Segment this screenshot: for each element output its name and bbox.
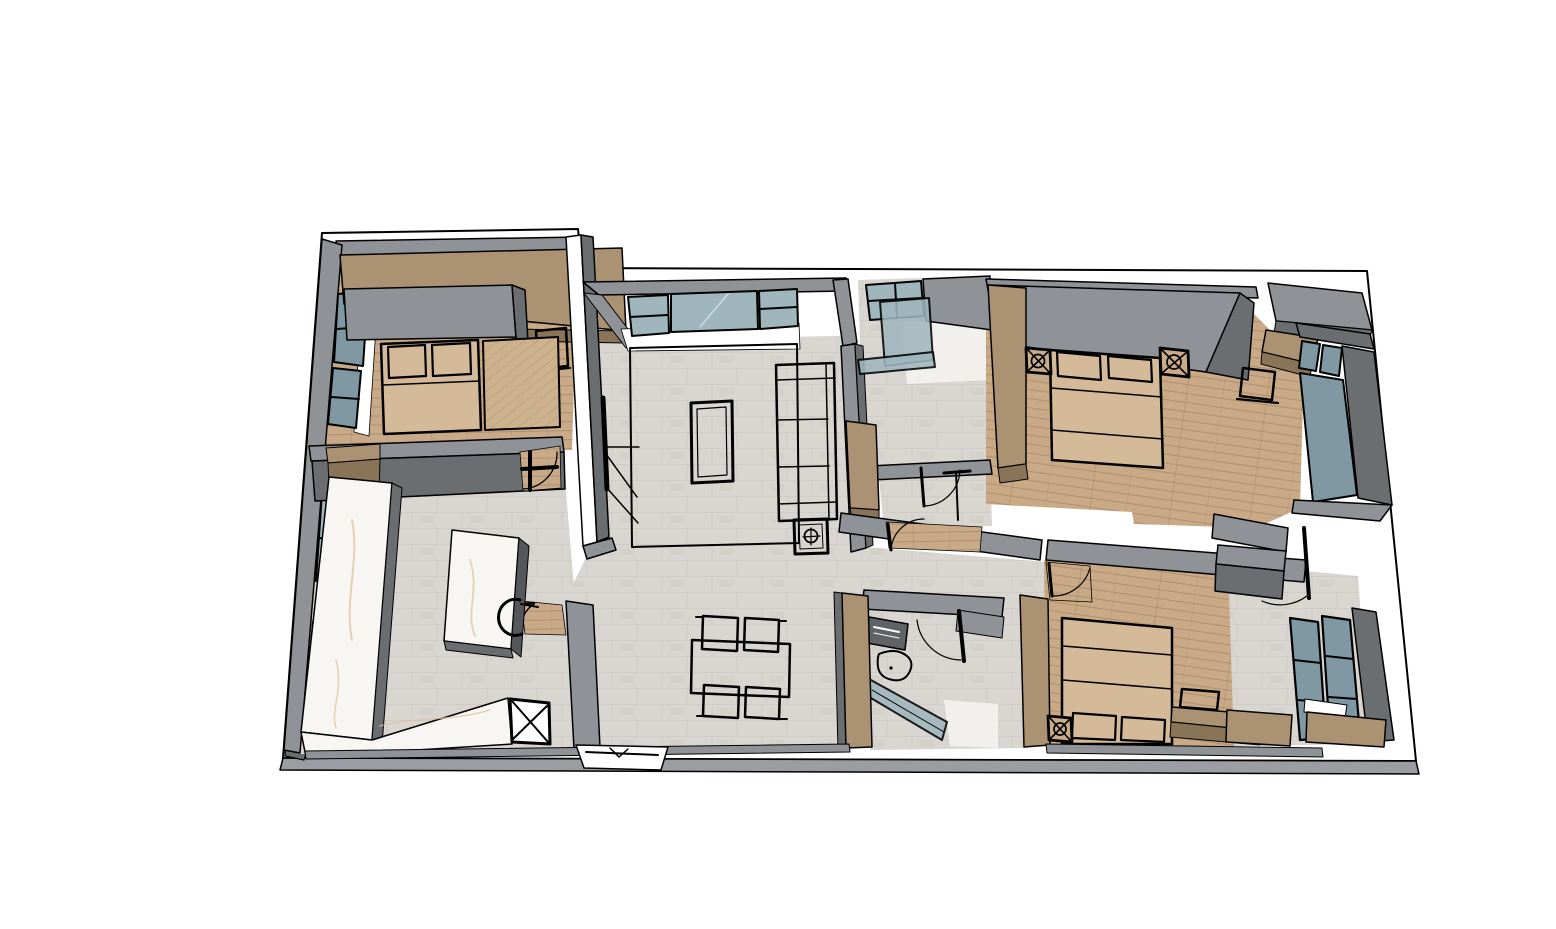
slab-edge-bottom (280, 758, 1419, 774)
floorplan-stage (0, 0, 1556, 929)
window-bed1-pane-2 (1320, 345, 1342, 376)
wardrobe-tl-top (344, 285, 516, 340)
cabinet-dining-east-wood (842, 593, 872, 748)
sofa-section-2 (778, 466, 829, 467)
floorplan-svg (0, 0, 1556, 929)
wardrobe-closet-wood (846, 421, 879, 510)
door-kitchen-closer-h (522, 467, 557, 469)
wardrobe-bath2-east-wood (1020, 595, 1050, 747)
floor-bath-bottom-white (944, 700, 998, 748)
threshold-bed1-door (886, 522, 982, 552)
bed-1 (1050, 350, 1163, 468)
toilet-bath2-dot (889, 666, 892, 669)
window-living-2 (671, 291, 758, 332)
window-bed1-pane-1 (1299, 341, 1320, 371)
wall-bath-top-ne (923, 276, 992, 330)
counter-se-wood-left (1226, 710, 1292, 746)
bed-tl (381, 340, 481, 434)
sofa-section-1 (777, 419, 828, 420)
mat-tl (483, 337, 560, 430)
island-top (444, 530, 519, 649)
entry-door-notch (576, 745, 668, 770)
